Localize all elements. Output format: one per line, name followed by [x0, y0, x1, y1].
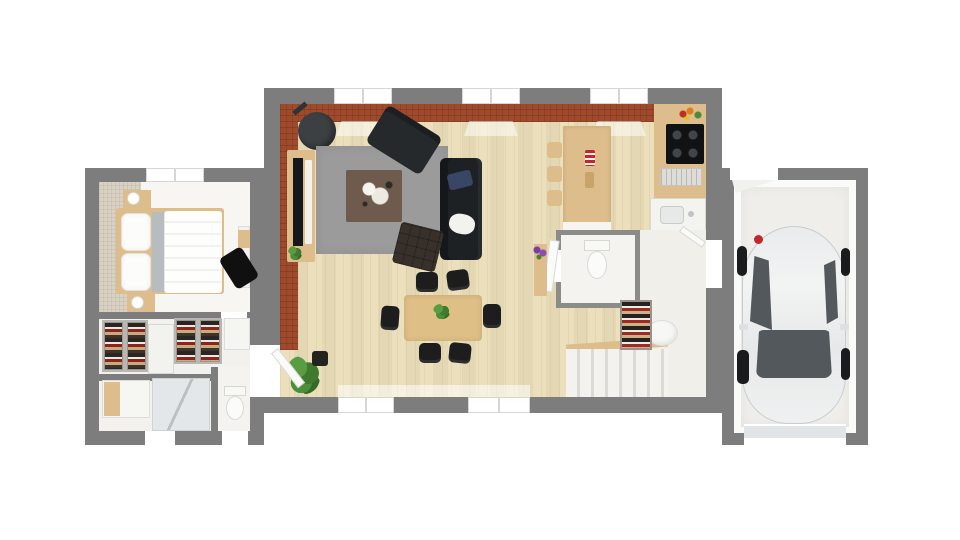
window-south-1 [338, 397, 394, 413]
dining-chair [448, 342, 472, 364]
wardrobe-right-clothes [200, 320, 220, 362]
stair-steps [566, 349, 668, 397]
car-logo [754, 235, 763, 244]
bed-duvet [164, 211, 222, 293]
bedside-lamp [131, 296, 144, 309]
garage-door-threshold [744, 438, 846, 445]
dining-chair [483, 304, 501, 328]
dish-rack [660, 168, 702, 186]
partition-bath-wc [211, 367, 218, 431]
vanity-drawers [104, 382, 120, 416]
bed-pillow [121, 253, 151, 291]
floorplan-scene [0, 0, 960, 540]
wardrobe-right-clothes [176, 320, 196, 362]
wardrobe-sliding-door [148, 324, 174, 374]
vegetable-basket [678, 106, 704, 121]
garage-side-door-gap [730, 168, 778, 180]
island-cutting-board [585, 172, 594, 188]
bedside-lamp [127, 192, 140, 205]
car [742, 226, 846, 424]
car-wheel [737, 246, 747, 276]
brick-wall-top [280, 104, 706, 122]
kitchen-island-base [563, 222, 611, 230]
car-wheel [841, 248, 850, 276]
suite-south-door-gap [145, 431, 175, 445]
bar-stool [547, 166, 562, 182]
garage-door-gap [706, 240, 722, 288]
bar-stool [547, 142, 562, 158]
dining-chair [416, 272, 438, 292]
car-mirror [739, 324, 748, 330]
sink-faucet [688, 211, 694, 217]
tv-screen [293, 158, 303, 246]
bed-blanket [152, 212, 164, 292]
desk-shelf [238, 230, 250, 248]
wc2-toilet-tank [224, 386, 246, 396]
window-north-3 [590, 88, 648, 104]
dining-chair [419, 343, 441, 363]
window-north-1 [334, 88, 392, 104]
car-wheel [841, 348, 850, 380]
window-sill [464, 121, 518, 136]
wc-toilet-tank [584, 240, 610, 251]
wardrobe-left-clothes [104, 322, 123, 370]
bedroom-window [146, 168, 204, 182]
bar-stool [547, 190, 562, 206]
corner-shower-tray [224, 318, 250, 350]
window-north-2 [462, 88, 520, 104]
car-body [742, 226, 846, 424]
staircase [566, 340, 668, 397]
car-wheel [737, 350, 749, 384]
sink-bowl [660, 206, 684, 224]
cooktop [666, 124, 704, 164]
table-centerpiece-plant [433, 304, 450, 319]
wardrobe-left-clothes [127, 322, 146, 370]
car-mirror [840, 324, 849, 330]
dining-chair [446, 269, 471, 292]
shower [152, 378, 210, 431]
shoe-rack-shelves [622, 302, 650, 348]
suite-south-door-gap [222, 431, 248, 445]
console-plant [288, 246, 302, 260]
garage-door [744, 424, 846, 438]
coffee-table-decor [360, 180, 394, 210]
wc-toilet-bowl [587, 251, 607, 279]
window-south-2 [468, 397, 530, 413]
island-red-jar [585, 150, 595, 166]
dining-chair [380, 305, 400, 330]
wc2-toilet-bowl [226, 396, 244, 420]
plant-pot [312, 351, 328, 366]
sliding-glass-door-strip [338, 385, 530, 397]
purple-flowers [533, 246, 548, 261]
wood-stove [298, 112, 336, 150]
tv-console-front [305, 160, 312, 244]
car-windshield [756, 330, 832, 378]
bed-pillow [121, 213, 151, 251]
